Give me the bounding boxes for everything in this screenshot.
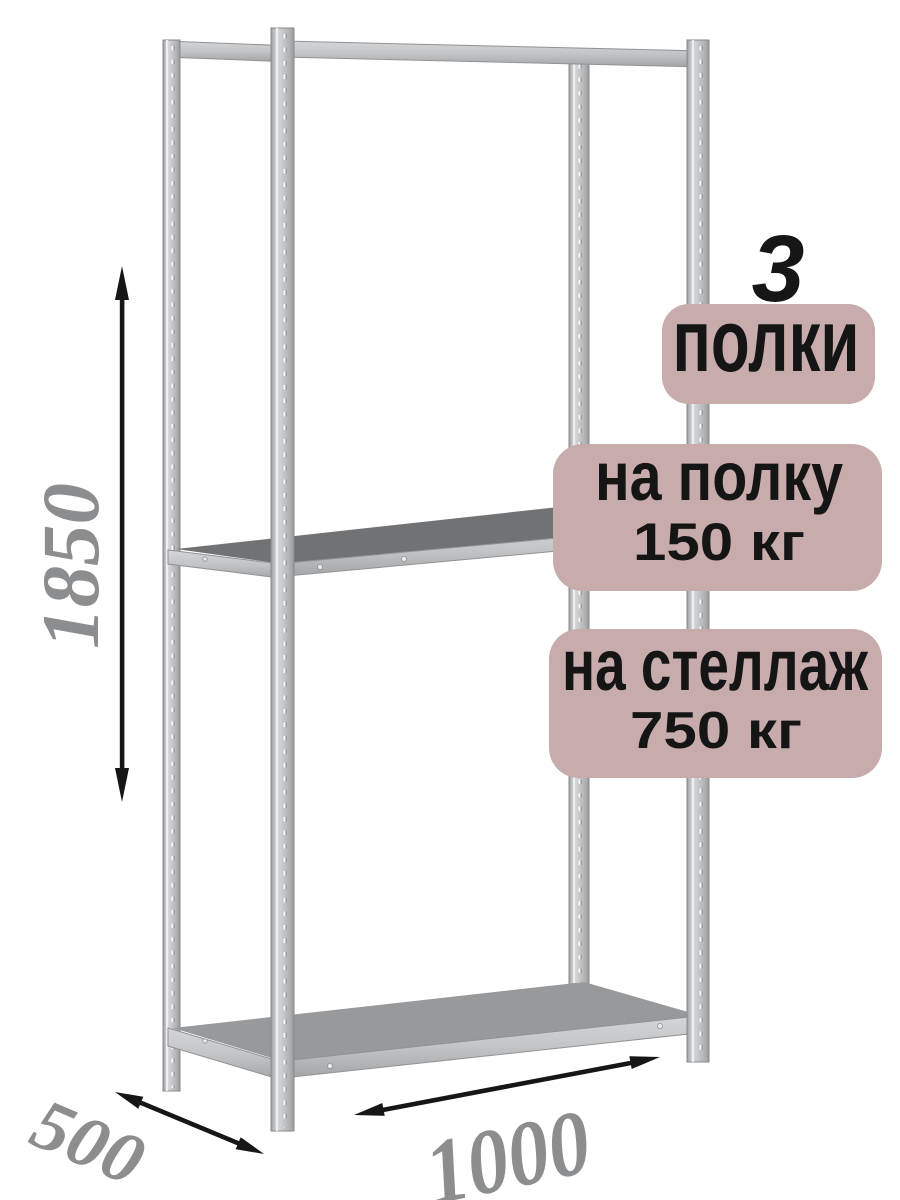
svg-text:на стеллаж: на стеллаж (562, 626, 869, 706)
svg-text:150 кг: 150 кг (633, 513, 805, 572)
svg-text:полки: полки (673, 291, 860, 390)
svg-text:1850: 1850 (25, 483, 116, 649)
svg-text:на полку: на полку (595, 438, 843, 515)
svg-text:750 кг: 750 кг (630, 702, 802, 760)
